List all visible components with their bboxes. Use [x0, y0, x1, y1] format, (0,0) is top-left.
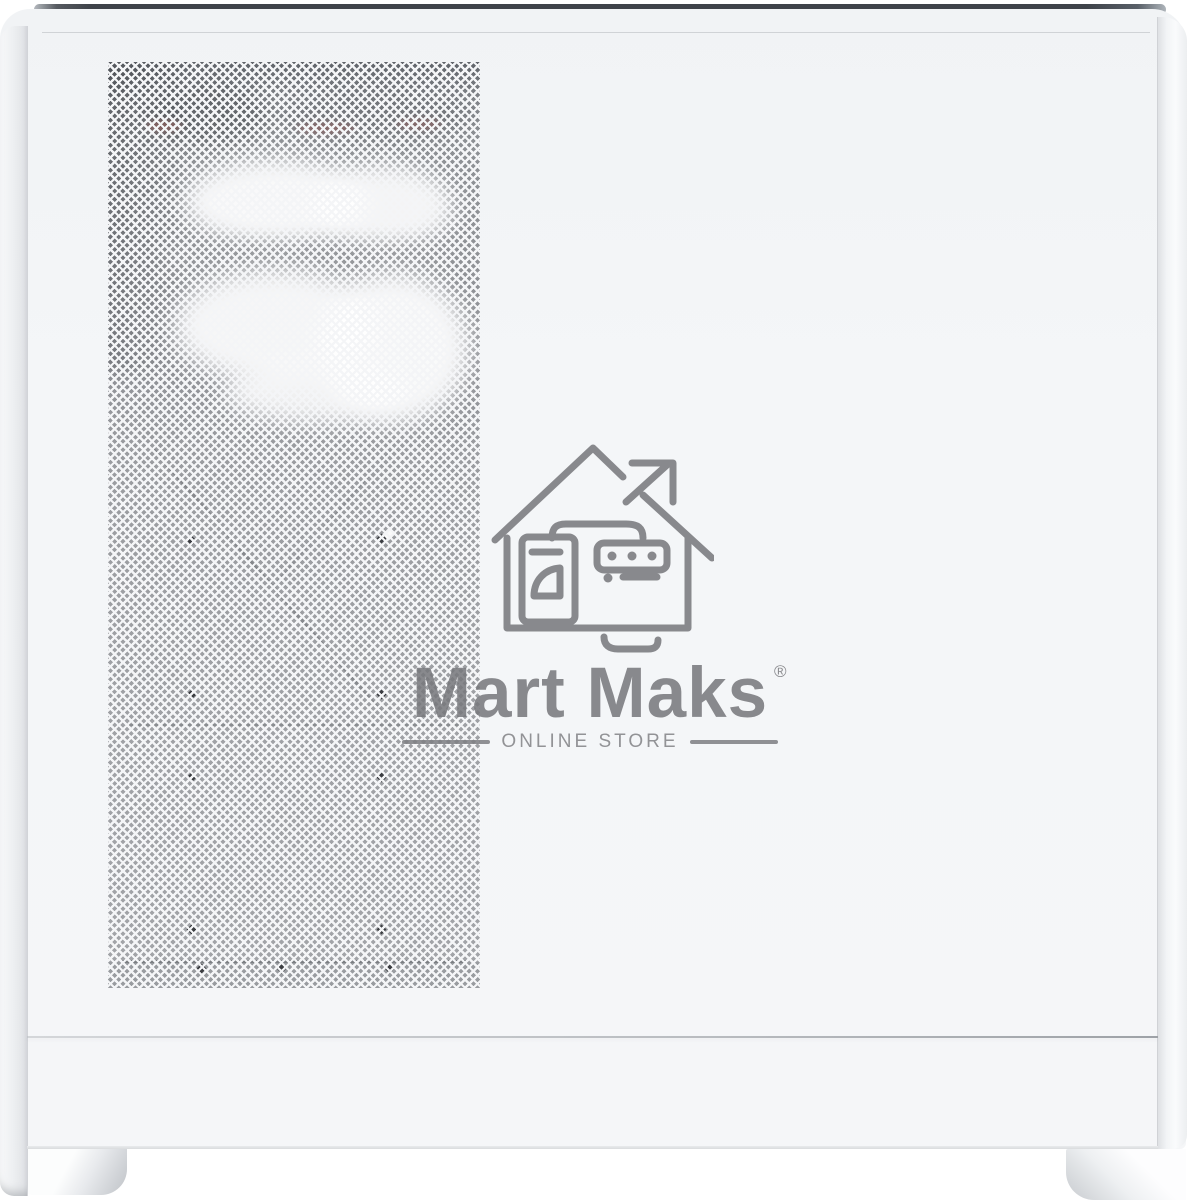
case-bottom-edge	[27, 1146, 1158, 1149]
case-top-seam	[42, 32, 1150, 33]
case-foot-right	[1066, 1149, 1186, 1200]
mesh-lattice	[108, 62, 480, 988]
case-rear-edge	[1157, 17, 1187, 1149]
mesh-ventilation-panel	[108, 62, 480, 988]
case-base-seam	[27, 1036, 1158, 1038]
product-photo-white-pc-case: Mart Maks ® ONLINE STORE	[0, 0, 1191, 1200]
case-foot-left	[26, 1149, 127, 1195]
case-front-edge	[0, 26, 28, 1196]
